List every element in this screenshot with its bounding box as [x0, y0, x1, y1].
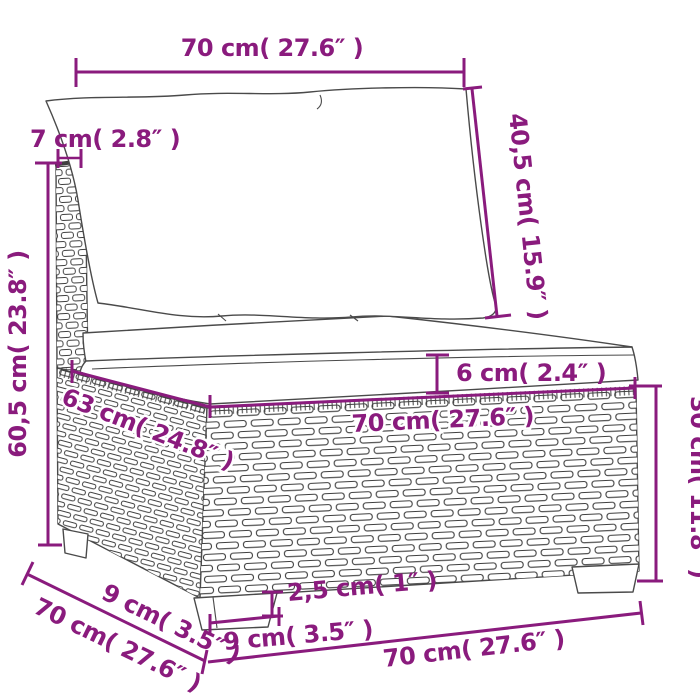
dim-tick	[22, 562, 33, 585]
foot-back-left	[63, 529, 88, 558]
dim-label-top-width: 70 cm( 27.6″ )	[181, 34, 364, 62]
sofa-dimension-drawing: 70 cm( 27.6″ ) 7 cm( 2.8″ ) 60,5 cm( 23.…	[0, 0, 700, 700]
dim-tick	[640, 601, 643, 625]
dim-tick	[463, 87, 482, 89]
back-cushion	[46, 88, 496, 321]
foot-front-right	[572, 564, 639, 593]
dim-label-base-height: 30 cm( 11.8″ )	[685, 396, 700, 579]
dim-label-overall-height: 60,5 cm( 23.8″ )	[4, 250, 32, 457]
dim-top-width	[76, 58, 464, 87]
dim-label-seat-cushion-thickness: 6 cm( 2.4″ )	[456, 359, 606, 387]
dim-label-back-cushion-height: 40,5 cm( 15.9″ )	[503, 112, 553, 321]
dim-label-back-panel-width: 7 cm( 2.8″ )	[30, 125, 180, 153]
dimension-diagram: 70 cm( 27.6″ ) 7 cm( 2.8″ ) 60,5 cm( 23.…	[0, 0, 700, 700]
back-cushion-body	[46, 88, 496, 319]
